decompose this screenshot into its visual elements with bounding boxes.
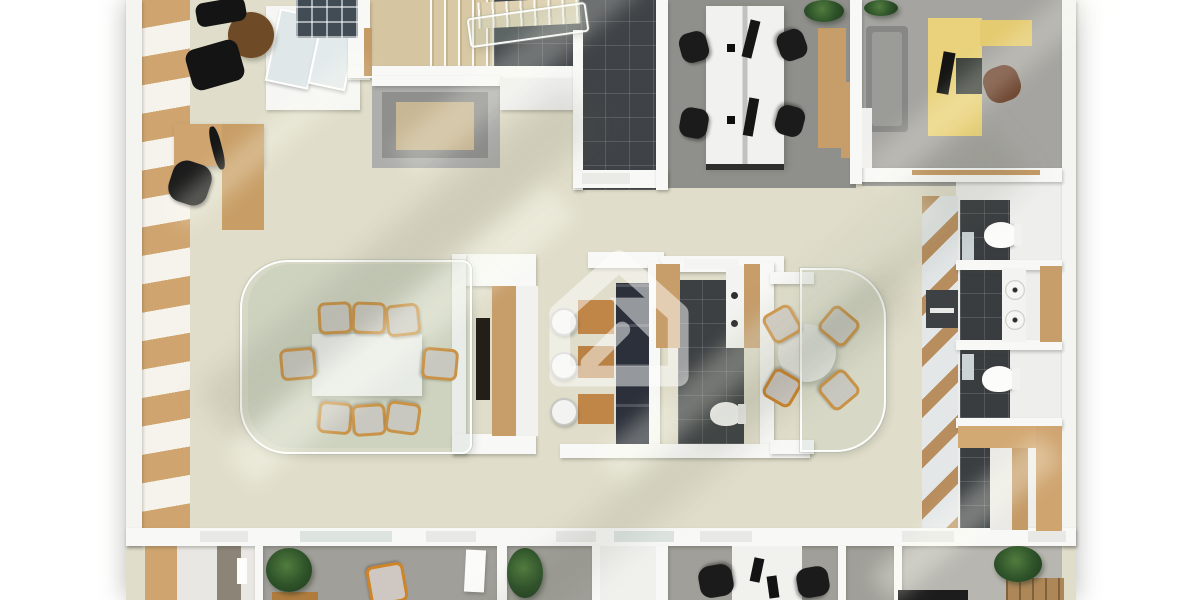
- whiteboard-a: [237, 558, 247, 584]
- storage-cabinet: [818, 28, 846, 148]
- bottomleft-wood-panel: [145, 546, 177, 600]
- workstation-desk-bank: [706, 6, 784, 166]
- right-outer-wall: [1062, 0, 1076, 546]
- openoffice-west-wall: [656, 0, 668, 190]
- bath3-mirror: [962, 354, 974, 380]
- openoffice-east-wall: [850, 0, 862, 184]
- toilet1-tank: [1014, 224, 1022, 246]
- lobby-door: [582, 173, 630, 184]
- media-tv: [476, 318, 490, 400]
- nook-desk-dark: [898, 590, 968, 600]
- plant-a: [804, 0, 844, 22]
- bottom-divider-4: [656, 546, 668, 600]
- plant-c: [994, 546, 1042, 582]
- desk-bank-end-panel: [706, 164, 784, 170]
- toilet1-bowl: [984, 222, 1018, 248]
- toilet2-bowl: [982, 366, 1016, 392]
- media-white-strip: [516, 286, 538, 436]
- vestibule-dark-glazing: [296, 0, 358, 38]
- bottom-door-6: [1028, 531, 1066, 542]
- break-table-3: [578, 394, 614, 424]
- sofa-grey-seat: [872, 32, 902, 126]
- bottom-door-4: [700, 531, 752, 542]
- sink-a: [1005, 280, 1025, 300]
- bath2-tile: [960, 268, 1004, 342]
- floorplan-stage: [0, 0, 1200, 600]
- plant-d: [266, 548, 312, 592]
- bottom-door-1: [200, 531, 248, 542]
- whiteboard-b: [464, 550, 486, 593]
- monitor-c: [727, 44, 735, 52]
- bottom-divider-1: [255, 546, 263, 600]
- kitchenette-cabinet: [656, 264, 680, 348]
- bottom-desk-b: [732, 546, 802, 600]
- plant-b: [864, 0, 898, 16]
- bottom-wood-table: [272, 592, 318, 600]
- media-wood-panel: [492, 286, 516, 436]
- stool-3: [550, 398, 578, 426]
- vanity-faucet-a: [731, 292, 738, 299]
- bottom-glass-door-1: [300, 531, 392, 542]
- vanity-faucet-b: [731, 320, 738, 327]
- bath1-mirror: [962, 232, 974, 260]
- vanity-wood-panel: [1040, 266, 1062, 342]
- left-striped-feature-wall: [142, 0, 190, 546]
- left-outer-wall: [126, 0, 142, 546]
- break-table-1: [578, 300, 614, 334]
- break-table-2: [578, 346, 614, 378]
- monitor-d: [727, 116, 735, 124]
- sink-b: [1005, 310, 1025, 330]
- stool-1: [550, 308, 578, 336]
- toilet2-tank: [1012, 368, 1020, 390]
- bottom-door-2: [426, 531, 476, 542]
- bath-niche-shelf: [930, 308, 954, 313]
- stool-2: [550, 352, 578, 380]
- bottom-chair-wood: [365, 561, 409, 600]
- bottom-divider-5: [838, 546, 846, 600]
